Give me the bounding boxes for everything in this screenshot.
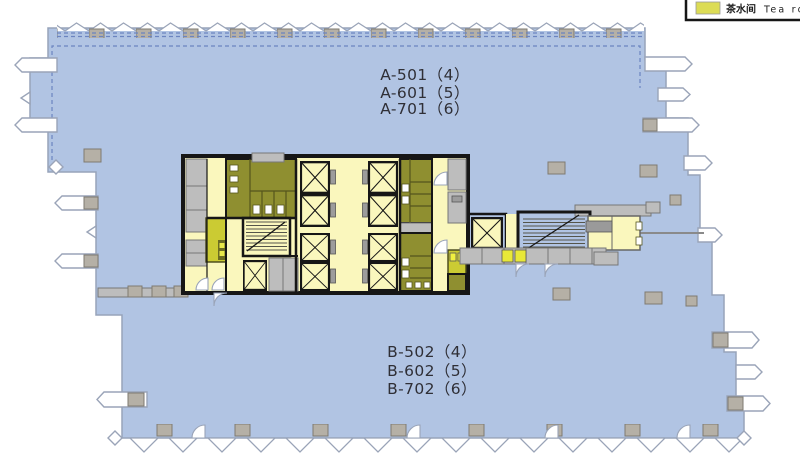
column bbox=[640, 165, 657, 177]
elevator-shaft bbox=[301, 234, 329, 261]
legend: 茶水间 Tea ro bbox=[686, 0, 800, 20]
column bbox=[128, 286, 142, 297]
legend-label-en: Tea ro bbox=[763, 5, 800, 16]
tea-room-swatch-icon bbox=[696, 2, 720, 14]
facade-fin bbox=[15, 118, 57, 132]
unit-label-b3: B-702（6） bbox=[387, 380, 477, 398]
unit-label-a1: A-501（4） bbox=[380, 66, 470, 84]
elevator-shaft bbox=[244, 261, 266, 290]
unit-label-b2: B-602（5） bbox=[387, 362, 477, 380]
column bbox=[645, 292, 662, 304]
facade-fin bbox=[698, 228, 722, 242]
column bbox=[553, 288, 570, 300]
column bbox=[686, 296, 697, 306]
elevator-shaft bbox=[369, 195, 397, 226]
elevator-shaft bbox=[301, 162, 329, 193]
service-room bbox=[186, 159, 207, 232]
elevator-shaft bbox=[301, 263, 329, 290]
facade-bottom-band bbox=[125, 438, 741, 453]
elevator-shaft bbox=[301, 195, 329, 226]
elevator-shaft bbox=[369, 234, 397, 261]
service-room bbox=[448, 159, 466, 190]
column bbox=[670, 195, 681, 205]
floor-plan-svg: A-501（4） A-601（5） A-701（6） B-502（4） B-60… bbox=[0, 0, 800, 473]
elevator-shaft bbox=[472, 218, 502, 248]
shaft-vent bbox=[252, 153, 284, 162]
facade-fin bbox=[645, 57, 692, 71]
floor-plan-page: A-501（4） A-601（5） A-701（6） B-502（4） B-60… bbox=[0, 0, 800, 473]
facade-fin bbox=[658, 88, 690, 101]
unit-label-b1: B-502（4） bbox=[387, 343, 477, 361]
facade-fin bbox=[736, 365, 762, 379]
column bbox=[152, 286, 166, 297]
corner-diamond bbox=[108, 431, 122, 445]
facade-top-band bbox=[57, 22, 644, 38]
unit-label-a3: A-701（6） bbox=[380, 100, 470, 118]
facade-fin bbox=[684, 156, 712, 170]
facade-fin bbox=[87, 226, 96, 238]
legend-label-zh: 茶水间 bbox=[725, 3, 756, 16]
elevator-shaft bbox=[369, 162, 397, 193]
facade-fin bbox=[21, 92, 30, 104]
column bbox=[548, 162, 565, 174]
facade-bottom-squares bbox=[125, 424, 741, 437]
elevator-shaft bbox=[369, 263, 397, 290]
facade-fin bbox=[15, 58, 57, 72]
